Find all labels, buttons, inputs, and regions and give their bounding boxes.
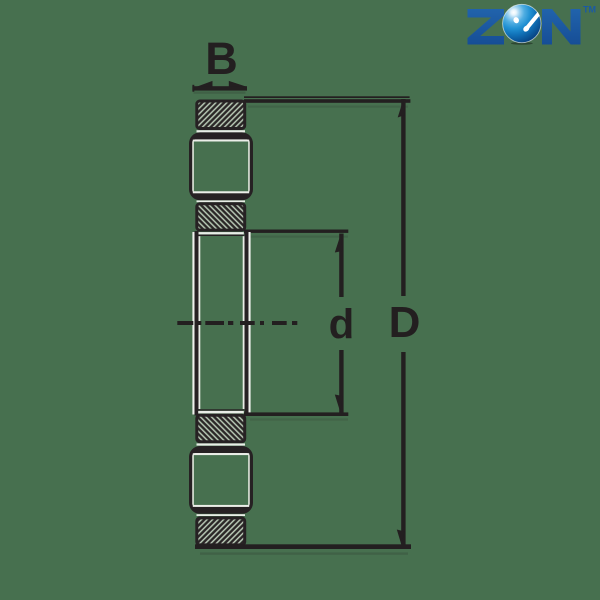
svg-text:TM: TM: [583, 5, 596, 15]
svg-text:B: B: [205, 33, 238, 84]
svg-text:d: d: [329, 301, 355, 348]
svg-text:D: D: [389, 298, 421, 347]
